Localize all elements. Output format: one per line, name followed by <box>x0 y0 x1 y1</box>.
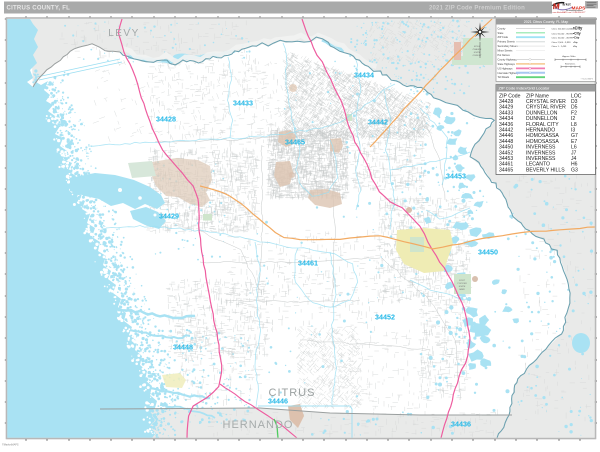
svg-text:County: County <box>498 27 507 30</box>
svg-text:34453: 34453 <box>446 172 466 181</box>
svg-text:34442: 34442 <box>368 118 388 127</box>
svg-text:34450: 34450 <box>478 248 498 257</box>
svg-text:34436: 34436 <box>451 420 471 429</box>
svg-text:PRAIRIE: PRAIRIE <box>473 48 482 51</box>
svg-text:Cities 2,500 - 9,999: Cities 2,500 - 9,999 <box>552 41 572 44</box>
svg-text:Approx. Miles: Approx. Miles <box>562 55 576 58</box>
svg-text:STATE: STATE <box>459 285 466 288</box>
svg-text:FORT: FORT <box>459 280 466 282</box>
svg-text:34465: 34465 <box>285 138 305 147</box>
svg-text:Cities 50,000 - 99,999: Cities 50,000 - 99,999 <box>552 32 574 35</box>
svg-text:ROSS: ROSS <box>474 46 481 48</box>
svg-text:FOREST: FOREST <box>473 55 483 57</box>
svg-text:34446: 34446 <box>268 397 288 406</box>
svg-text:PARK: PARK <box>459 288 465 291</box>
svg-text:www.MarketMAPS.com • 1.888.434: www.MarketMAPS.com • 1.888.434.6277 <box>553 11 586 14</box>
svg-text:Minor Streets: Minor Streets <box>498 50 514 53</box>
svg-text:ZIP Code Index/Grid Locator: ZIP Code Index/Grid Locator <box>499 86 551 91</box>
svg-text:LEVY: LEVY <box>108 28 140 39</box>
svg-text:Toll Roads: Toll Roads <box>498 76 510 79</box>
svg-text:County Highways: County Highways <box>498 59 518 62</box>
svg-text:Kilometers: Kilometers <box>565 62 576 65</box>
svg-text:34434: 34434 <box>354 71 374 80</box>
svg-text:34429: 34429 <box>159 212 179 221</box>
svg-text:Primary Streets: Primary Streets <box>498 41 516 44</box>
svg-text:34448: 34448 <box>173 343 193 352</box>
svg-text:•City: •City <box>573 26 583 31</box>
svg-text:ZIP Code: ZIP Code <box>498 36 509 39</box>
svg-text:State: State <box>498 32 504 35</box>
svg-text:Cities 1 - 2,499: Cities 1 - 2,499 <box>552 45 567 48</box>
svg-text:Poi Names: Poi Names <box>498 54 511 57</box>
svg-text:Cities 10,000 - 49,999: Cities 10,000 - 49,999 <box>552 37 574 40</box>
svg-text:34465: 34465 <box>499 167 513 173</box>
svg-text:34433: 34433 <box>233 99 253 108</box>
svg-text:•City: •City <box>573 36 580 40</box>
svg-text:G3: G3 <box>571 167 578 173</box>
svg-text:arket: arket <box>563 2 572 6</box>
svg-text:•City: •City <box>573 45 577 48</box>
svg-text:State Highways: State Highways <box>498 63 516 66</box>
svg-text:Secondary Streets: Secondary Streets <box>498 45 519 48</box>
svg-text:BEVERLY HILLS: BEVERLY HILLS <box>526 167 565 173</box>
svg-text:HERNANDO: HERNANDO <box>223 419 294 431</box>
svg-text:©MarketMAPS: ©MarketMAPS <box>2 444 19 447</box>
svg-text:34428: 34428 <box>156 115 176 124</box>
svg-text:34461: 34461 <box>298 259 318 268</box>
svg-text:© MarketMAPS: © MarketMAPS <box>581 78 594 81</box>
svg-text:US Highways: US Highways <box>498 67 514 70</box>
svg-text:COOPER: COOPER <box>457 283 467 285</box>
svg-text:CITRUS COUNTY, FL: CITRUS COUNTY, FL <box>7 6 71 12</box>
svg-text:2021 ZIP Code Premium Edition: 2021 ZIP Code Premium Edition <box>429 6 525 12</box>
svg-text:2021 Citrus County, FL Map: 2021 Citrus County, FL Map <box>524 20 569 24</box>
svg-text:34452: 34452 <box>375 313 395 322</box>
